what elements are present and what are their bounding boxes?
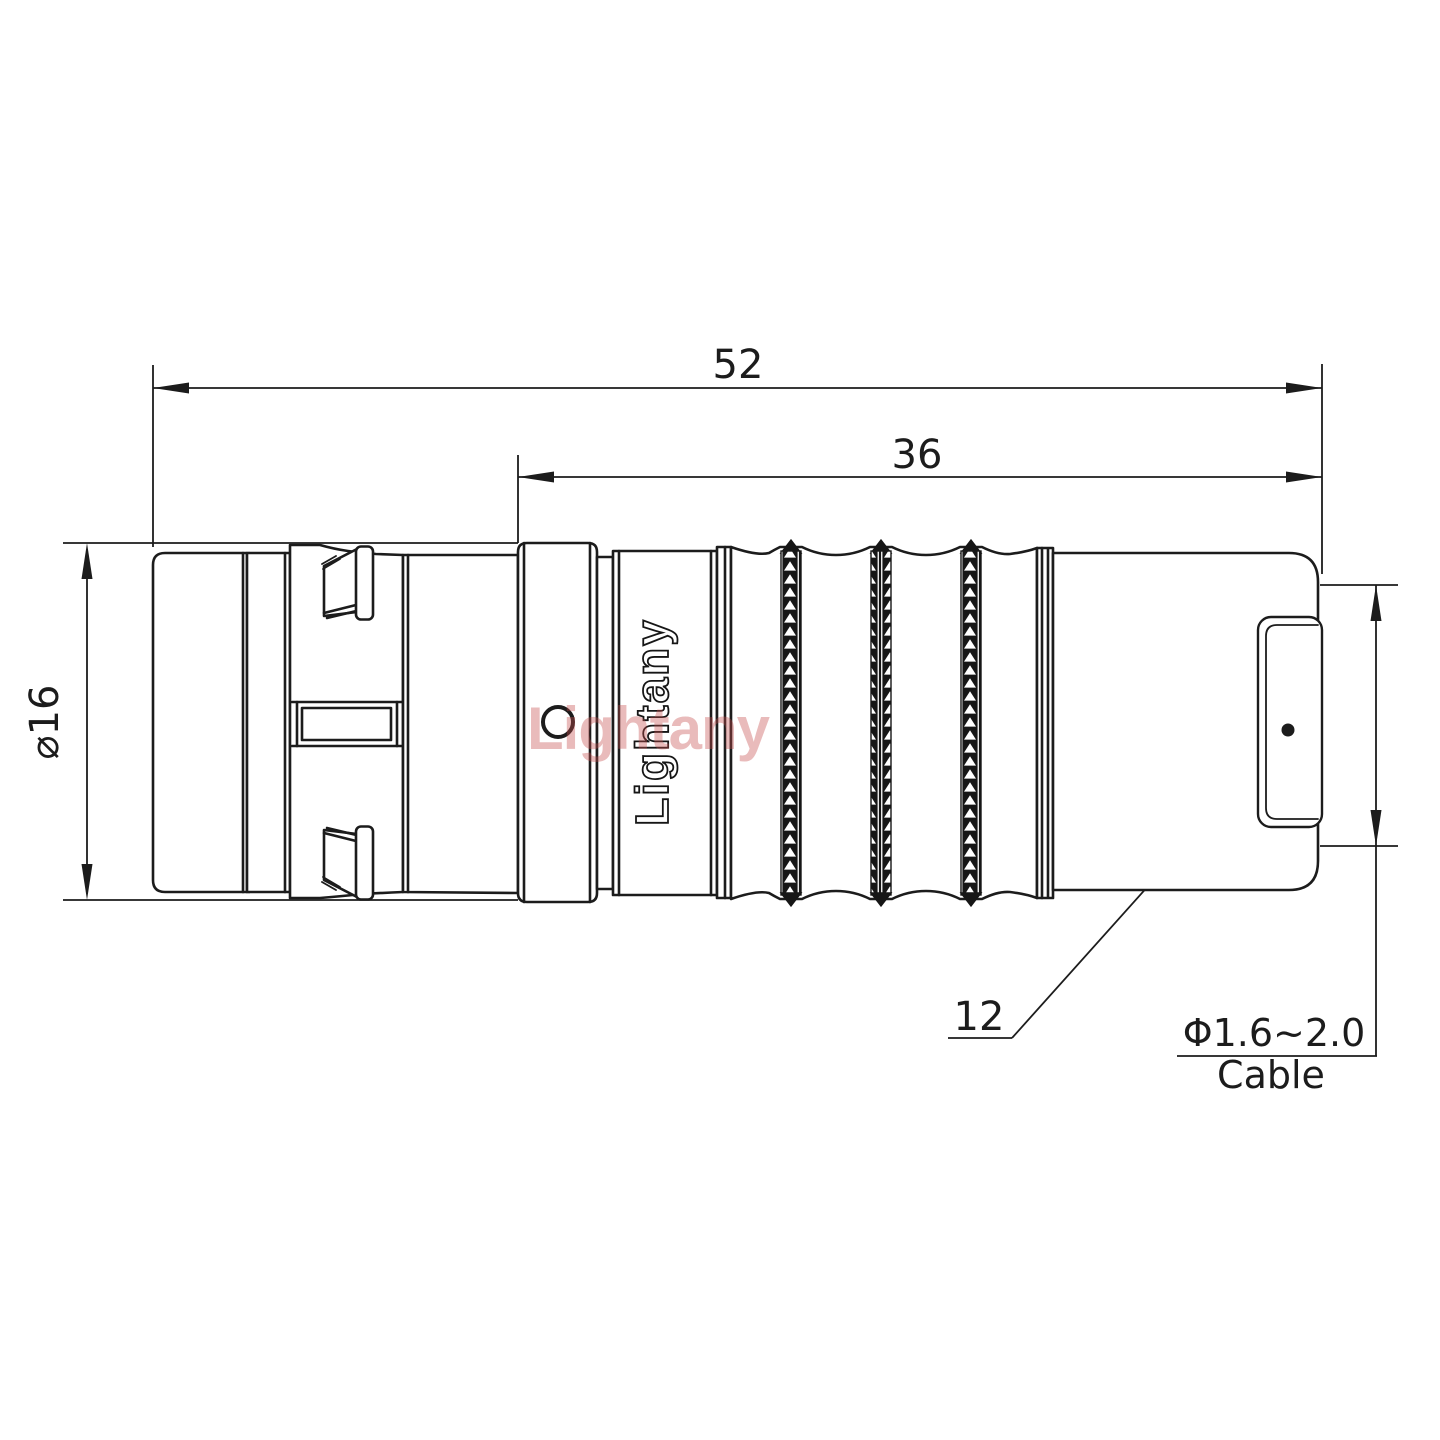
connector-drawing-svg: 52 36 ⌀16 12 Φ1.6~2.0 Cable Lightany xyxy=(0,0,1440,1440)
cable-range-label: Φ1.6~2.0 xyxy=(1183,1011,1366,1055)
dim-36-label: 36 xyxy=(892,432,943,478)
cable-boss xyxy=(1258,617,1322,827)
coupling-collar xyxy=(518,543,597,902)
thin-ring xyxy=(717,547,731,898)
front-cap xyxy=(153,553,249,892)
vent-hole xyxy=(543,707,573,737)
leader-dot xyxy=(1282,724,1295,737)
connector-body xyxy=(153,543,1322,902)
latch-section xyxy=(290,545,406,900)
knurled-grip xyxy=(731,547,1053,899)
dia16-label: ⌀16 xyxy=(22,685,68,760)
dim-52-label: 52 xyxy=(713,342,764,388)
front-barrel xyxy=(403,555,518,893)
knurl-band xyxy=(871,540,891,906)
collar-step xyxy=(597,557,613,889)
cable-word-label: Cable xyxy=(1217,1053,1325,1097)
brand-engraving: Lightany xyxy=(626,618,678,826)
knurl-band xyxy=(781,540,801,906)
technical-drawing-page: 52 36 ⌀16 12 Φ1.6~2.0 Cable Lightany Lig… xyxy=(0,0,1440,1440)
front-ring xyxy=(247,553,290,892)
dim-12-label: 12 xyxy=(954,994,1005,1040)
rear-cap xyxy=(1053,553,1322,890)
knurl-band xyxy=(961,540,981,906)
